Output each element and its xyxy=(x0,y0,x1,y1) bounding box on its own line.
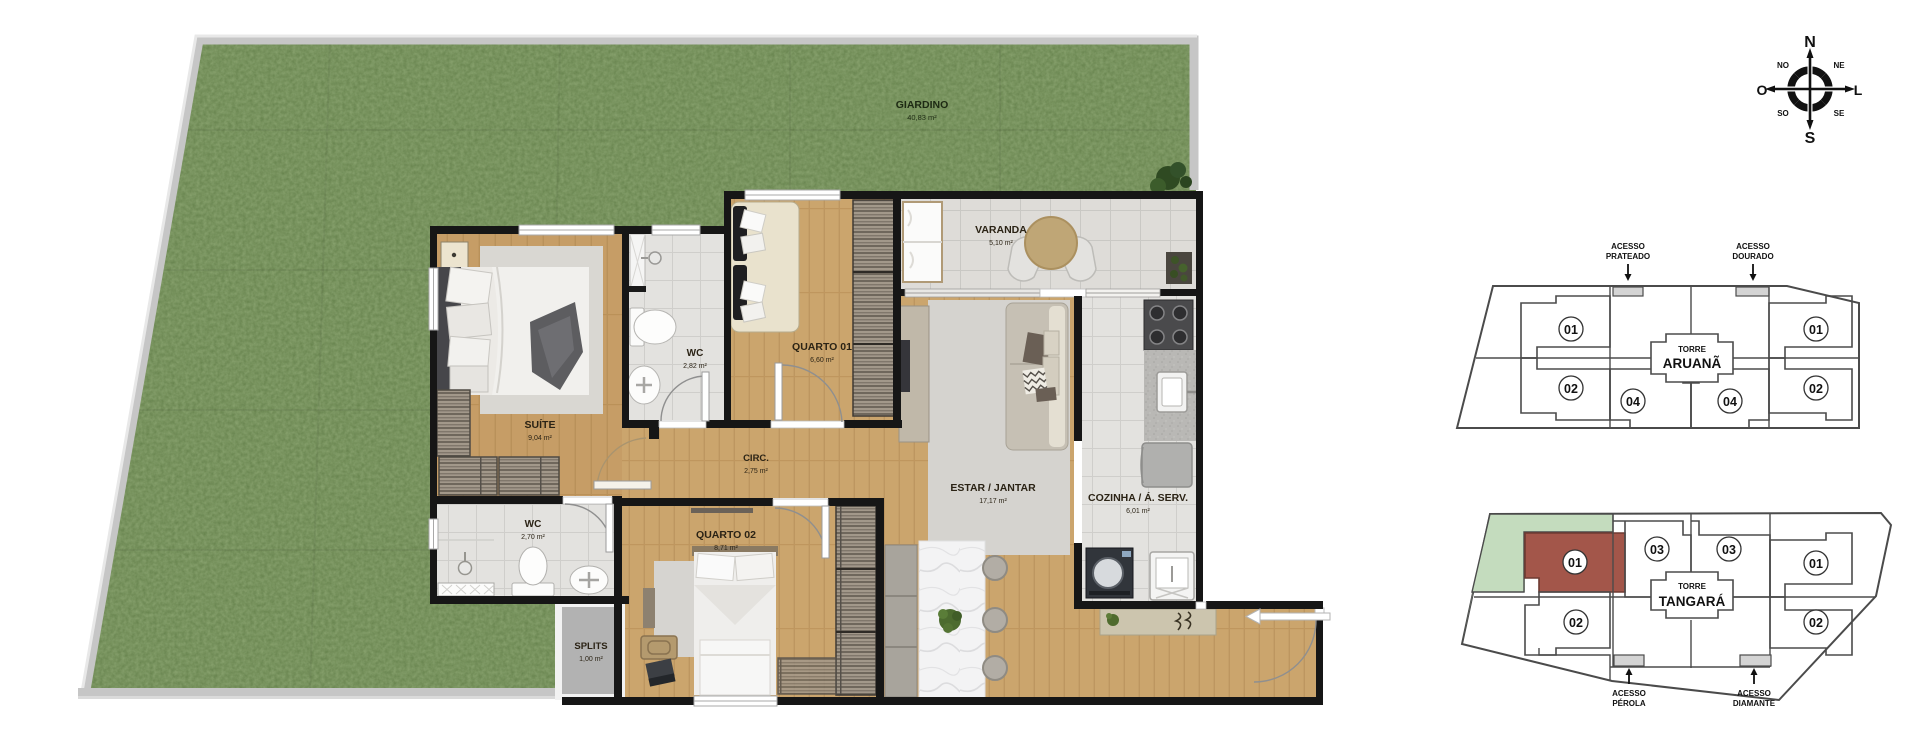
svg-text:GIARDINO: GIARDINO xyxy=(896,99,949,111)
svg-text:DIAMANTE: DIAMANTE xyxy=(1733,699,1776,708)
svg-text:ACESSO: ACESSO xyxy=(1611,242,1645,251)
svg-text:8,71 m²: 8,71 m² xyxy=(714,545,738,552)
svg-text:L: L xyxy=(1854,82,1863,98)
svg-text:02: 02 xyxy=(1809,616,1823,630)
svg-text:6,01 m²: 6,01 m² xyxy=(1126,508,1150,515)
svg-text:01: 01 xyxy=(1809,323,1823,337)
svg-text:WC: WC xyxy=(525,519,542,530)
svg-text:PÉROLA: PÉROLA xyxy=(1612,699,1646,708)
svg-text:SE: SE xyxy=(1834,109,1845,118)
svg-text:N: N xyxy=(1804,34,1816,51)
svg-text:01: 01 xyxy=(1564,323,1578,337)
svg-text:ACESSO: ACESSO xyxy=(1736,242,1770,251)
svg-text:S: S xyxy=(1805,130,1816,147)
svg-text:COZINHA / Á. SERV.: COZINHA / Á. SERV. xyxy=(1088,491,1188,504)
svg-text:PRATEADO: PRATEADO xyxy=(1606,252,1650,261)
svg-text:SO: SO xyxy=(1777,109,1789,118)
svg-text:6,60 m²: 6,60 m² xyxy=(810,357,834,364)
svg-text:ARUANÃ: ARUANÃ xyxy=(1663,356,1722,371)
svg-text:1,00 m²: 1,00 m² xyxy=(579,656,603,663)
svg-text:TANGARÁ: TANGARÁ xyxy=(1659,594,1726,609)
svg-text:DOURADO: DOURADO xyxy=(1732,252,1773,261)
svg-text:03: 03 xyxy=(1722,543,1736,557)
svg-text:WC: WC xyxy=(687,348,704,359)
svg-text:17,17 m²: 17,17 m² xyxy=(979,498,1007,505)
svg-text:QUARTO 02: QUARTO 02 xyxy=(696,529,756,541)
svg-text:SPLITS: SPLITS xyxy=(574,641,607,652)
svg-text:NO: NO xyxy=(1777,61,1789,70)
svg-text:TORRE: TORRE xyxy=(1678,345,1707,354)
svg-text:O: O xyxy=(1757,82,1768,98)
svg-text:QUARTO 01: QUARTO 01 xyxy=(792,341,852,353)
svg-text:02: 02 xyxy=(1564,382,1578,396)
svg-text:03: 03 xyxy=(1650,543,1664,557)
svg-text:04: 04 xyxy=(1626,395,1640,409)
svg-text:VARANDA: VARANDA xyxy=(975,224,1027,236)
svg-text:01: 01 xyxy=(1568,556,1582,570)
svg-text:2,75 m²: 2,75 m² xyxy=(744,468,768,475)
svg-text:ACESSO: ACESSO xyxy=(1737,689,1771,698)
svg-text:9,04 m²: 9,04 m² xyxy=(528,435,552,442)
svg-text:2,82 m²: 2,82 m² xyxy=(683,363,707,370)
svg-text:ESTAR / JANTAR: ESTAR / JANTAR xyxy=(950,482,1036,494)
svg-text:04: 04 xyxy=(1723,395,1737,409)
svg-text:02: 02 xyxy=(1809,382,1823,396)
svg-text:NE: NE xyxy=(1833,61,1845,70)
svg-text:TORRE: TORRE xyxy=(1678,582,1707,591)
svg-text:02: 02 xyxy=(1569,616,1583,630)
svg-text:01: 01 xyxy=(1809,557,1823,571)
svg-text:CIRC.: CIRC. xyxy=(743,453,769,464)
svg-text:SUÍTE: SUÍTE xyxy=(525,418,556,431)
svg-text:40,83 m²: 40,83 m² xyxy=(907,113,937,122)
svg-text:2,70 m²: 2,70 m² xyxy=(521,534,545,541)
svg-text:5,10 m²: 5,10 m² xyxy=(989,240,1013,247)
svg-text:ACESSO: ACESSO xyxy=(1612,689,1646,698)
